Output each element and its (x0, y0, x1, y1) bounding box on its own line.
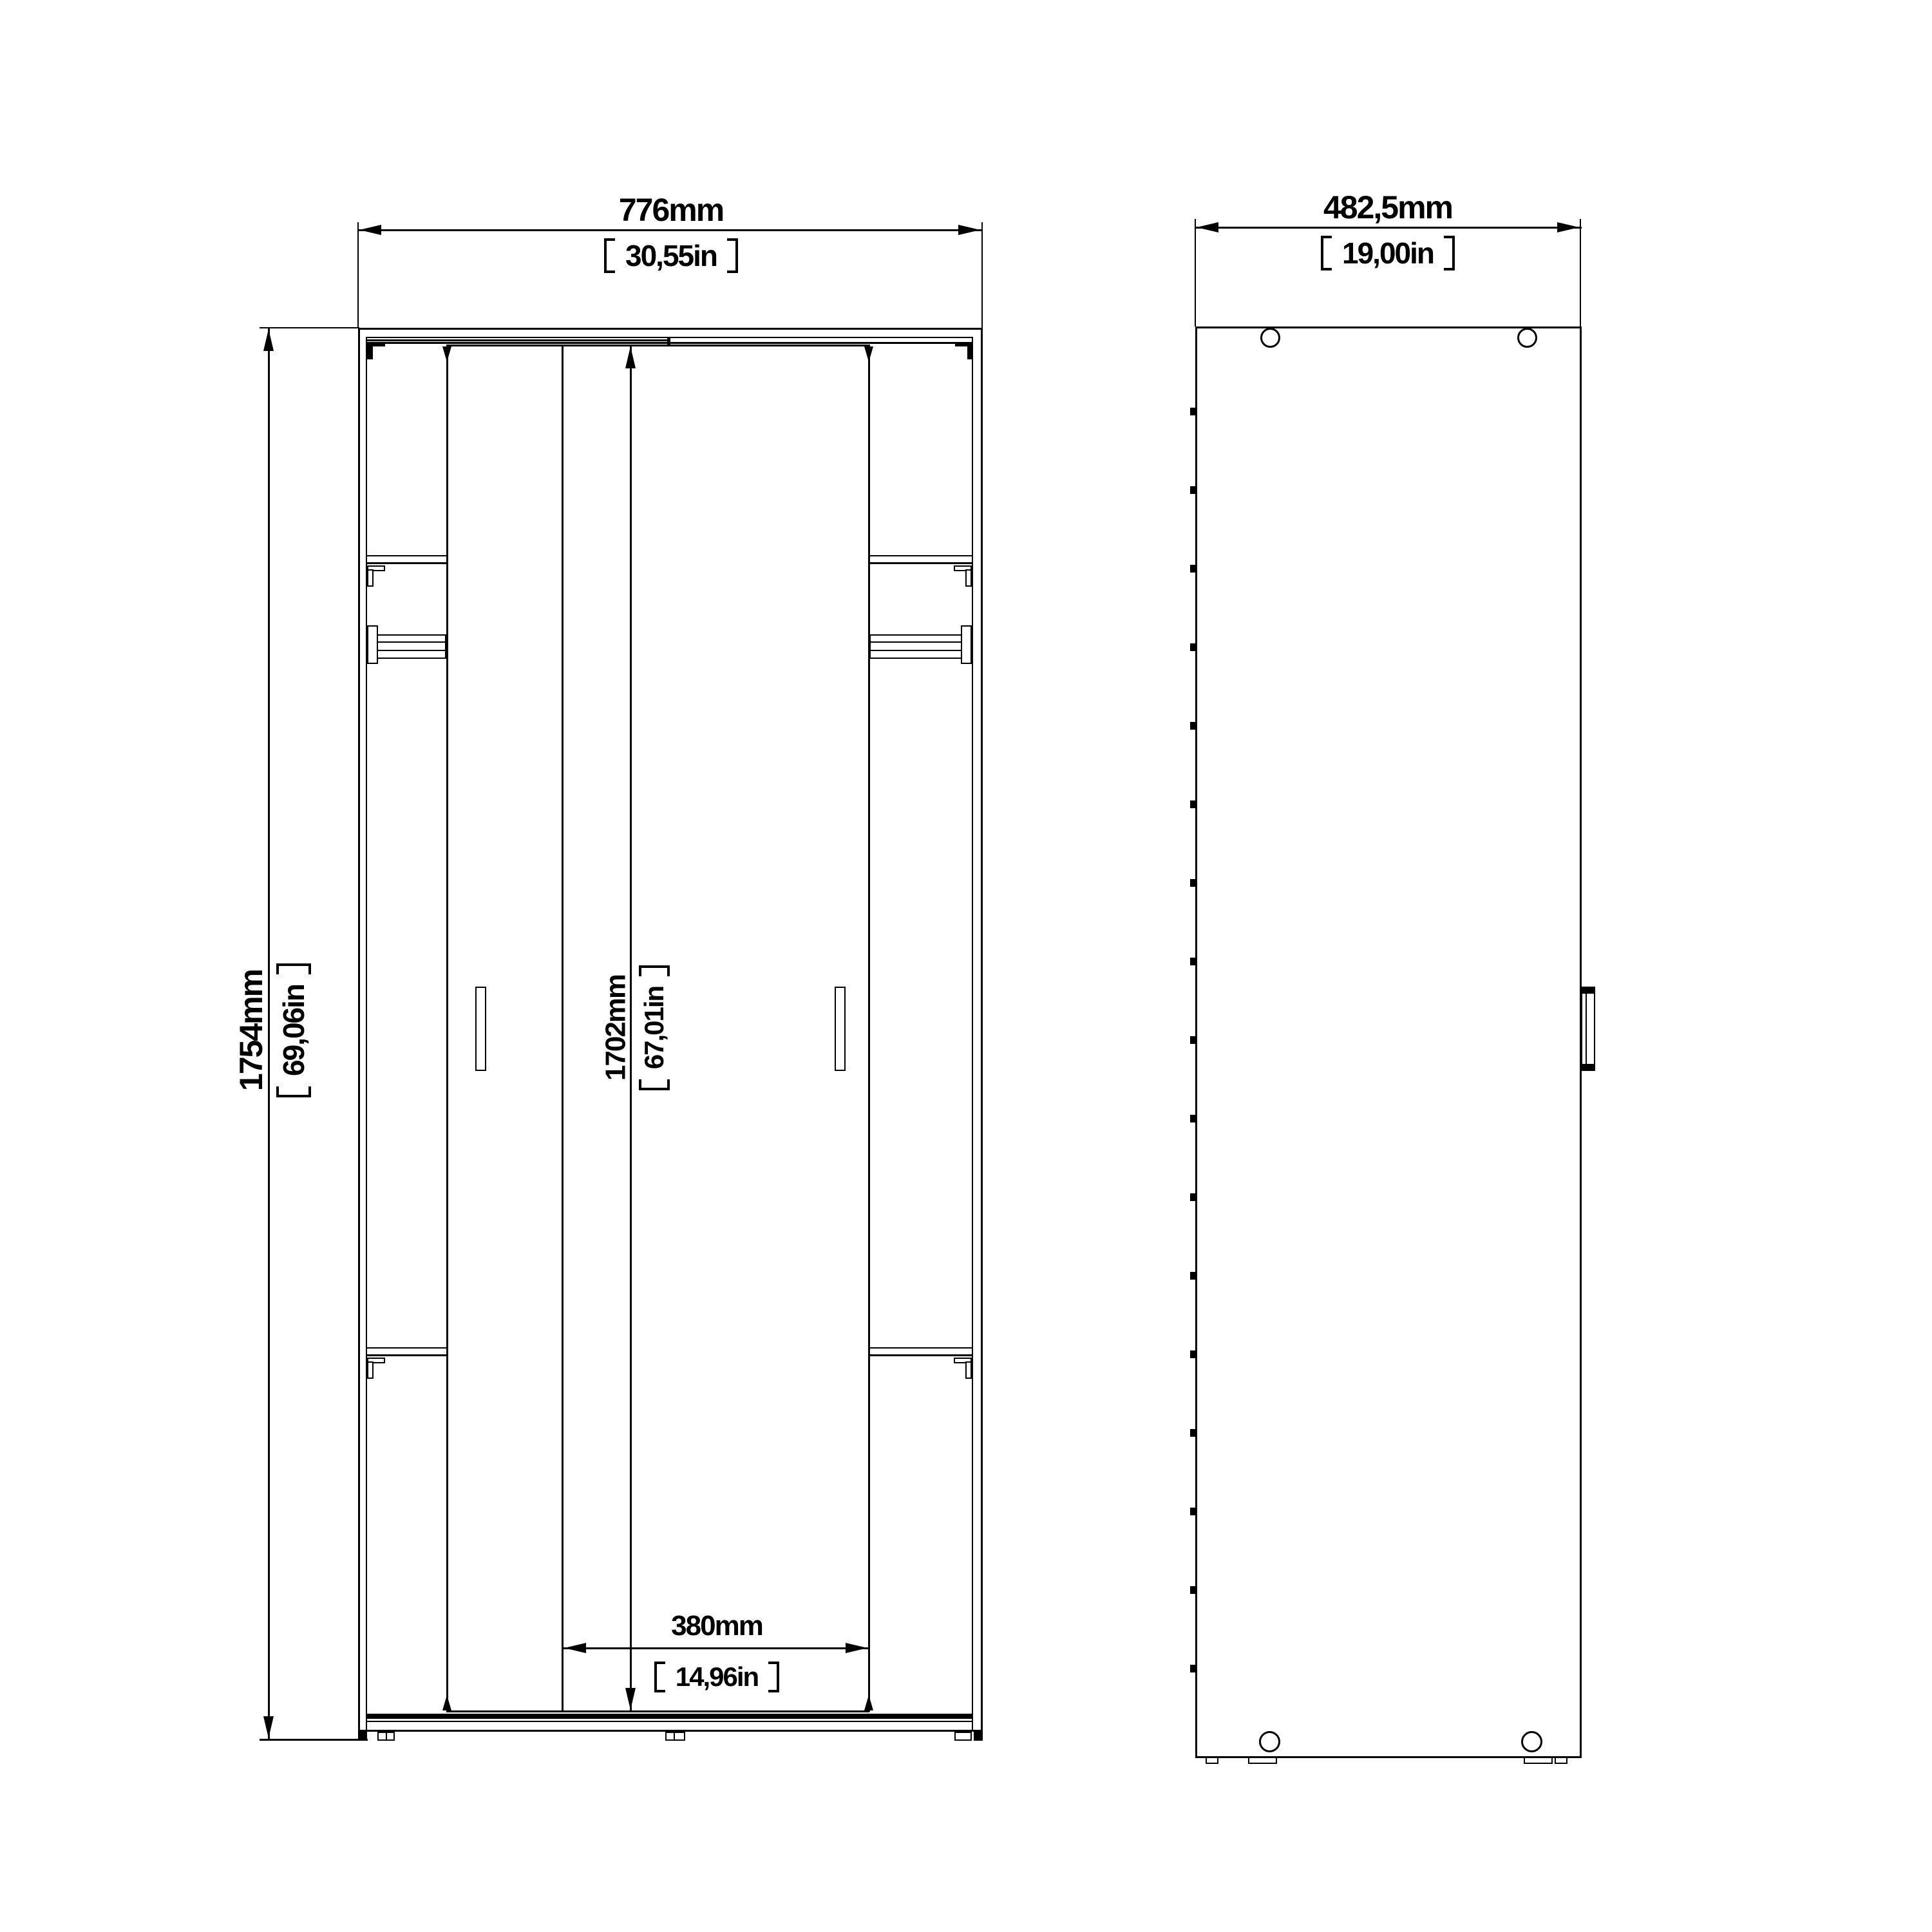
shelf-bracket-upper-right-v (965, 569, 972, 587)
dim-depth-line (1195, 227, 1582, 229)
pin-tick (1190, 1429, 1197, 1437)
bracket-open (1321, 236, 1332, 270)
side-foot-tab (1555, 1757, 1567, 1764)
dim-interior-arrow-bottom (625, 1688, 636, 1710)
dim-door-arrow-left (564, 1643, 586, 1653)
pin-tick (1190, 1036, 1197, 1044)
lower-shelf-left-top (367, 1347, 446, 1349)
upper-shelf-right-top (869, 555, 972, 556)
height-label-in: 69,06in (272, 958, 315, 1103)
upper-shelf-left-top (367, 555, 446, 556)
cam-hole-bottom-left (1259, 1731, 1280, 1752)
height-label-mm: 1754mm (236, 966, 266, 1095)
pin-tick (1190, 1115, 1197, 1122)
door-roller-bottom-left (442, 1695, 451, 1710)
bracket-close (727, 238, 738, 273)
side-handle-inner-line (1586, 994, 1587, 1064)
dim-height-arrow-top (263, 329, 274, 351)
side-foot-tab (1524, 1757, 1553, 1764)
side-foot-tab (1248, 1757, 1277, 1764)
clothes-rail-left (367, 634, 446, 659)
side-foot-tab (1206, 1757, 1218, 1764)
bracket-open (604, 238, 615, 273)
bracket-open (639, 1079, 670, 1090)
dim-door-line (563, 1647, 869, 1649)
rail-bracket-right (961, 625, 972, 664)
bracket-close (639, 965, 670, 976)
left-door-edge-line (446, 345, 448, 1712)
pin-tick (1190, 1665, 1197, 1672)
interior-height-label-mm: 1702mm (603, 969, 630, 1088)
lower-shelf-left-bottom (367, 1354, 446, 1356)
side-handle-profile (1581, 992, 1595, 1065)
dim-depth-arrow-left (1197, 222, 1218, 232)
side-handle-cap-bottom (1581, 1064, 1595, 1071)
dim-interior-arrow-top (625, 346, 636, 368)
cam-hole-top-right (1517, 328, 1537, 348)
pin-tick (1190, 1193, 1197, 1201)
foot-center-inner-line (674, 1732, 675, 1741)
door-handle-right (835, 987, 846, 1071)
lower-shelf-right-bottom (869, 1354, 972, 1356)
bracket-close (276, 963, 311, 974)
pin-tick (1190, 879, 1197, 887)
track-junction-tick (667, 337, 670, 345)
cam-hole-top-left (1260, 328, 1280, 348)
door-width-label-in: 14,96in (650, 1656, 783, 1698)
lower-shelf-right-top (869, 1347, 972, 1349)
width-label-mm: 776mm (607, 196, 735, 224)
doors-bottom-edge (446, 1710, 869, 1712)
pin-tick (1190, 958, 1197, 965)
doors-top-edge (446, 345, 869, 346)
technical-drawing: 776mm 30,55in 1754mm 69,06in 1702mm 67,0… (0, 0, 1932, 1932)
foot-right (954, 1732, 972, 1741)
foot-left-inner-line (386, 1732, 387, 1741)
side-view-outline (1195, 327, 1582, 1758)
dim-width-ext-left (357, 222, 359, 328)
pin-tick (1190, 408, 1197, 415)
door-track-rear-line (366, 339, 670, 341)
clothes-rail-left-line2 (367, 650, 446, 651)
base-front-line (366, 1721, 973, 1722)
pin-tick (1190, 1350, 1197, 1358)
pin-tick (1190, 1508, 1197, 1515)
shelf-bracket-upper-left-v (367, 569, 374, 587)
clothes-rail-left-line1 (367, 641, 446, 643)
right-inner-wall-line (972, 337, 973, 1730)
shelf-bracket-lower-right-v (965, 1361, 972, 1379)
dim-width-ext-right (981, 222, 983, 328)
clothes-rail-right-line1 (869, 641, 972, 643)
depth-label-in: 19,00in (1318, 231, 1457, 276)
pin-tick (1190, 565, 1197, 573)
pin-tick (1190, 486, 1197, 494)
clothes-rail-right (869, 634, 972, 659)
track-end-cap-left-v (367, 342, 373, 359)
dim-height-ext-top (260, 327, 359, 328)
foot-dark-right (974, 1732, 983, 1741)
door-roller-bottom-right (864, 1695, 873, 1710)
foot-center (665, 1732, 685, 1741)
depth-label-mm: 482,5mm (1311, 193, 1465, 222)
door-roller-top-left (442, 346, 451, 362)
front-door-right-edge-line (868, 345, 870, 1712)
interior-height-label-in: 67,01in (634, 960, 674, 1095)
bracket-open (654, 1662, 665, 1692)
dim-height-arrow-bottom (263, 1716, 274, 1738)
bracket-open (276, 1086, 311, 1097)
dim-width-arrow-right (958, 225, 980, 235)
shelf-bracket-lower-left-v (367, 1361, 374, 1379)
rail-bracket-left (367, 625, 378, 664)
pin-tick (1190, 1272, 1197, 1280)
bracket-close (768, 1662, 779, 1692)
width-label-in: 30,55in (599, 233, 743, 278)
dim-depth-arrow-right (1557, 222, 1579, 232)
upper-shelf-right-bottom (869, 562, 972, 564)
dim-width-line (358, 229, 983, 231)
clothes-rail-right-line2 (869, 650, 972, 651)
bracket-close (1444, 236, 1455, 270)
upper-shelf-left-bottom (367, 562, 446, 564)
dim-depth-ext-right (1580, 219, 1581, 327)
front-door-left-edge-line (562, 345, 563, 1712)
left-inner-wall-line (366, 337, 367, 1730)
door-handle-left (475, 987, 486, 1071)
dim-depth-ext-left (1195, 219, 1196, 327)
dim-width-arrow-left (359, 225, 381, 235)
pin-tick (1190, 1586, 1197, 1594)
pin-tick (1190, 643, 1197, 651)
dim-door-arrow-right (846, 1643, 867, 1653)
dim-height-floor-line (260, 1739, 368, 1741)
bottom-track-band (366, 1714, 973, 1719)
door-roller-top-right (864, 346, 873, 362)
pin-tick (1190, 722, 1197, 730)
door-width-label-mm: 380mm (662, 1613, 772, 1640)
cam-hole-bottom-right (1521, 1731, 1542, 1752)
pin-tick (1190, 800, 1197, 808)
